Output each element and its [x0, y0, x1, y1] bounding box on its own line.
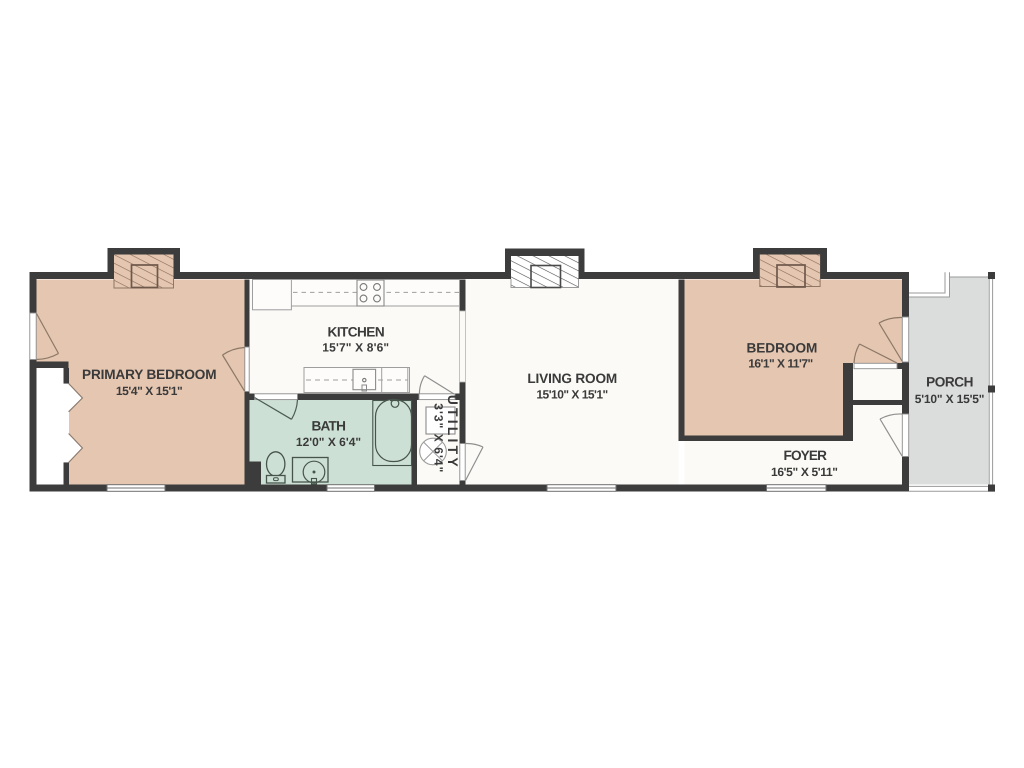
svg-text:15'7" X 8'6": 15'7" X 8'6" [322, 341, 389, 355]
svg-text:PORCH: PORCH [926, 374, 973, 389]
svg-text:KITCHEN: KITCHEN [328, 325, 385, 340]
svg-text:5'10" X 15'5": 5'10" X 15'5" [915, 392, 985, 406]
svg-text:12'0" X 6'4": 12'0" X 6'4" [296, 435, 361, 449]
svg-text:15'4" X 15'1": 15'4" X 15'1" [116, 384, 183, 398]
svg-text:BEDROOM: BEDROOM [746, 341, 817, 356]
svg-text:3'3" X 6'4": 3'3" X 6'4" [432, 403, 446, 472]
svg-text:LIVING ROOM: LIVING ROOM [527, 371, 617, 386]
svg-text:BATH: BATH [312, 419, 346, 434]
svg-text:16'1" X 11'7": 16'1" X 11'7" [748, 357, 813, 371]
svg-text:FOYER: FOYER [784, 448, 828, 463]
svg-text:16'5" X 5'11": 16'5" X 5'11" [771, 465, 838, 479]
svg-text:PRIMARY BEDROOM: PRIMARY BEDROOM [82, 367, 216, 382]
svg-text:15'10" X 15'1": 15'10" X 15'1" [536, 388, 608, 402]
